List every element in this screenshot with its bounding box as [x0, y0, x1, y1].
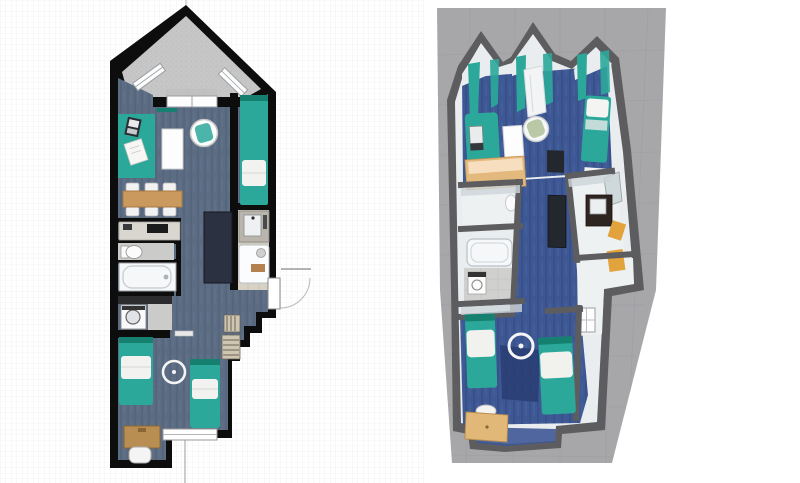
bedroom-window[interactable]: [163, 429, 217, 440]
washing-machine-door: [126, 310, 140, 324]
shower-room[interactable]: [238, 210, 269, 290]
armchair-3d: [524, 117, 549, 142]
laundry-room[interactable]: [118, 296, 172, 330]
dark-rug-3d: [500, 345, 540, 402]
design-workspace: [0, 0, 800, 483]
kitchen-counter[interactable]: [119, 222, 180, 240]
writing-desk[interactable]: [124, 426, 160, 448]
swivel-armchair[interactable]: [191, 120, 218, 147]
radiator-lower[interactable]: [222, 335, 240, 359]
wc-room[interactable]: [118, 243, 174, 260]
teal-desk-mat[interactable]: [118, 114, 155, 178]
workspace-canvas: [0, 0, 800, 483]
bed-left[interactable]: [119, 337, 153, 405]
hall-threshold: [175, 331, 193, 336]
radiator-upper[interactable]: [224, 315, 240, 332]
bath-mat: [251, 264, 265, 272]
bed-right-3d: [538, 336, 576, 415]
cooktop: [147, 224, 168, 233]
plan-2d-canvas[interactable]: [0, 0, 425, 483]
white-table[interactable]: [162, 129, 183, 169]
window-bay-column: [524, 66, 546, 117]
desk-chair[interactable]: [129, 447, 151, 463]
bed-right[interactable]: [190, 359, 220, 428]
dining-table: [123, 191, 182, 207]
bathtub[interactable]: [119, 263, 176, 291]
bed-upper-right[interactable]: [240, 95, 268, 205]
tv-cabinet-3d: [547, 150, 566, 248]
bed-top-right-3d: [581, 95, 612, 163]
bed-left-3d: [465, 313, 498, 388]
laptop-3d: [469, 126, 483, 144]
bathtub-3d: [464, 239, 515, 301]
dining-set[interactable]: [123, 183, 182, 216]
wardrobe[interactable]: [204, 212, 232, 283]
toilet-icon: [126, 246, 142, 259]
kitchen-sink: [123, 224, 132, 230]
view-3d-canvas[interactable]: [437, 8, 666, 463]
